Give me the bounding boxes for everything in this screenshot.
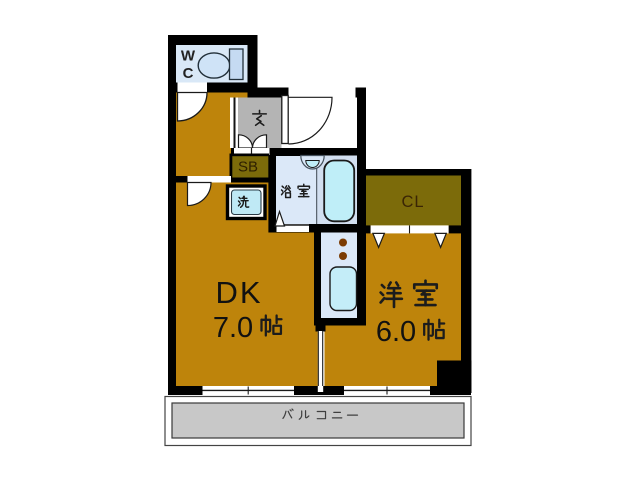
svg-text:SB: SB xyxy=(238,158,258,175)
svg-text:C: C xyxy=(183,65,194,82)
svg-text:7.0: 7.0 xyxy=(213,312,253,344)
svg-text:6.0: 6.0 xyxy=(376,316,416,348)
svg-text:DK: DK xyxy=(215,275,262,310)
svg-text:W: W xyxy=(181,48,196,65)
svg-text:CL: CL xyxy=(401,193,424,211)
